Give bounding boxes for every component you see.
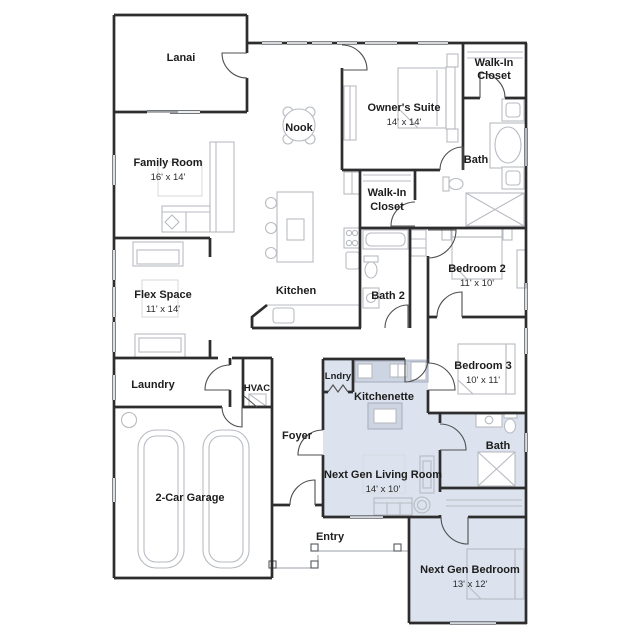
floor-plan-page: Lanai Family Room 16' x 14' Nook Owner's… bbox=[0, 0, 640, 640]
room-label-bedroom-2: Bedroom 2 bbox=[448, 263, 505, 275]
room-label-kitchenette: Kitchenette bbox=[354, 391, 414, 403]
room-label-nook: Nook bbox=[285, 122, 313, 134]
room-label-bedroom-3: Bedroom 3 bbox=[454, 360, 511, 372]
room-dims-family-room: 16' x 14' bbox=[151, 172, 186, 183]
room-dims-next-gen-bedroom: 13' x 12' bbox=[453, 579, 488, 590]
floor-plan: Lanai Family Room 16' x 14' Nook Owner's… bbox=[0, 0, 640, 640]
room-dims-next-gen-living-room: 14' x 10' bbox=[366, 484, 401, 495]
room-label-walk-in-closet-hall-line1: Walk-In bbox=[368, 187, 407, 199]
room-label-next-gen-bath: Bath bbox=[486, 440, 511, 452]
room-label-walk-in-closet-hall-line2: Closet bbox=[370, 201, 404, 213]
room-label-hvac: HVAC bbox=[244, 383, 270, 394]
room-label-kitchen: Kitchen bbox=[276, 285, 317, 297]
room-label-foyer: Foyer bbox=[282, 430, 313, 442]
room-label-next-gen-bedroom: Next Gen Bedroom bbox=[420, 564, 520, 576]
room-label-entry: Entry bbox=[316, 531, 345, 543]
room-dims-flex-space: 11' x 14' bbox=[146, 304, 180, 315]
room-dims-owners-suite: 14' x 14' bbox=[387, 117, 422, 128]
room-label-lndry: Lndry bbox=[325, 371, 352, 382]
plan-background bbox=[0, 0, 640, 640]
room-label-garage: 2-Car Garage bbox=[155, 492, 224, 504]
room-label-laundry: Laundry bbox=[131, 379, 175, 391]
room-label-bath-2: Bath 2 bbox=[371, 290, 405, 302]
room-label-owners-suite: Owner's Suite bbox=[368, 102, 441, 114]
room-label-flex-space: Flex Space bbox=[134, 289, 191, 301]
room-dims-bedroom-3: 10' x 11' bbox=[466, 375, 500, 386]
room-label-lanai: Lanai bbox=[167, 52, 196, 64]
room-label-walk-in-closet-owner-line2: Closet bbox=[477, 70, 511, 82]
room-label-owners-bath: Bath bbox=[464, 154, 489, 166]
room-label-walk-in-closet-owner-line1: Walk-In bbox=[475, 57, 514, 69]
room-dims-bedroom-2: 11' x 10' bbox=[460, 278, 494, 289]
room-label-family-room: Family Room bbox=[133, 157, 202, 169]
room-label-next-gen-living-room: Next Gen Living Room bbox=[324, 469, 442, 481]
